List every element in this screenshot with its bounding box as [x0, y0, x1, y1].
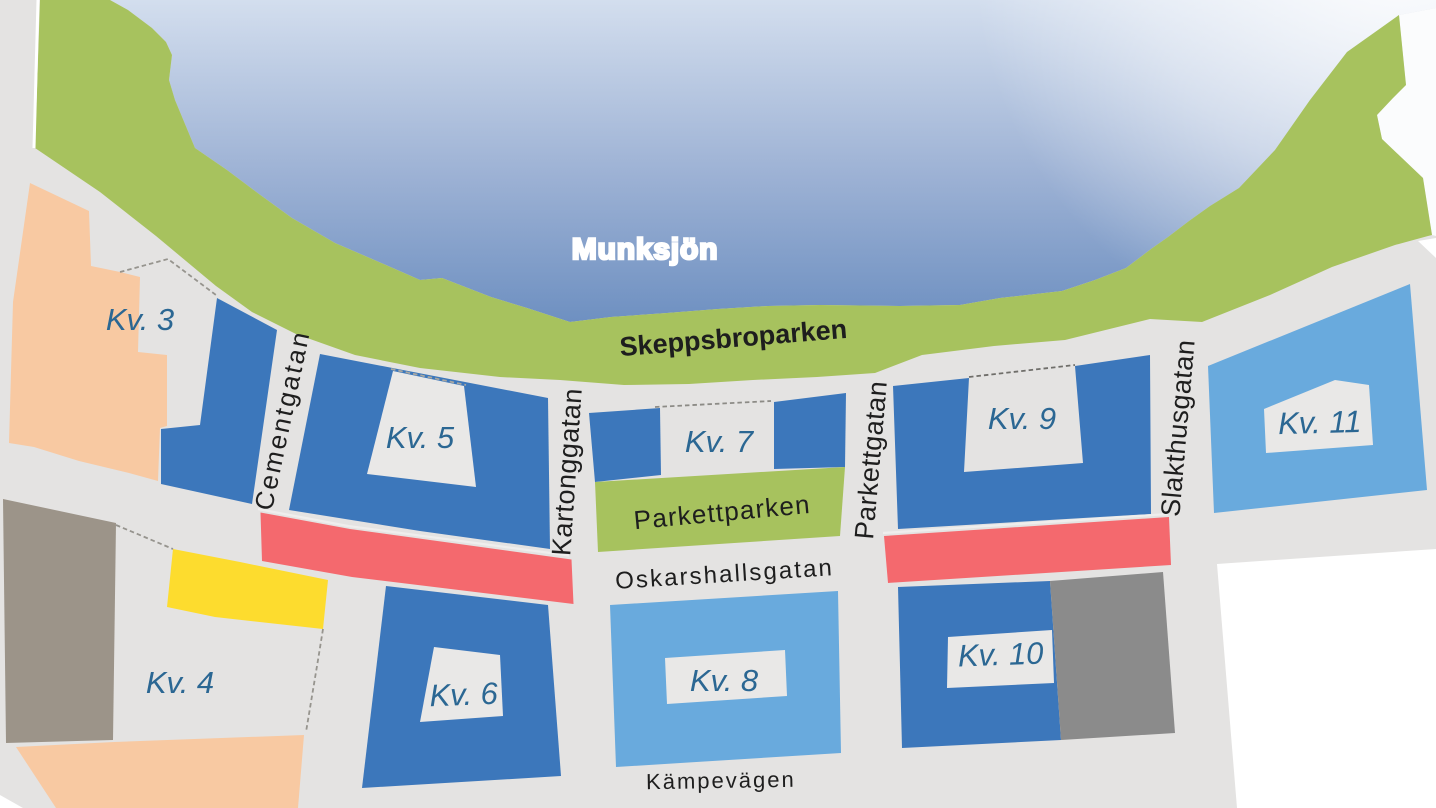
svg-text:Kv. 7: Kv. 7 [685, 424, 755, 459]
svg-text:Kämpevägen: Kämpevägen [646, 767, 796, 795]
svg-text:Kv. 4: Kv. 4 [146, 665, 214, 700]
svg-text:Kv. 3: Kv. 3 [106, 302, 174, 337]
svg-text:Kv. 6: Kv. 6 [429, 676, 499, 713]
svg-text:Kv. 11: Kv. 11 [1278, 404, 1362, 441]
svg-text:Kv. 8: Kv. 8 [690, 663, 759, 698]
svg-text:Kv. 9: Kv. 9 [988, 401, 1056, 436]
svg-text:Kv. 5: Kv. 5 [386, 420, 455, 455]
svg-text:Kv. 10: Kv. 10 [957, 636, 1044, 674]
svg-text:Munksjön: Munksjön [572, 233, 718, 266]
